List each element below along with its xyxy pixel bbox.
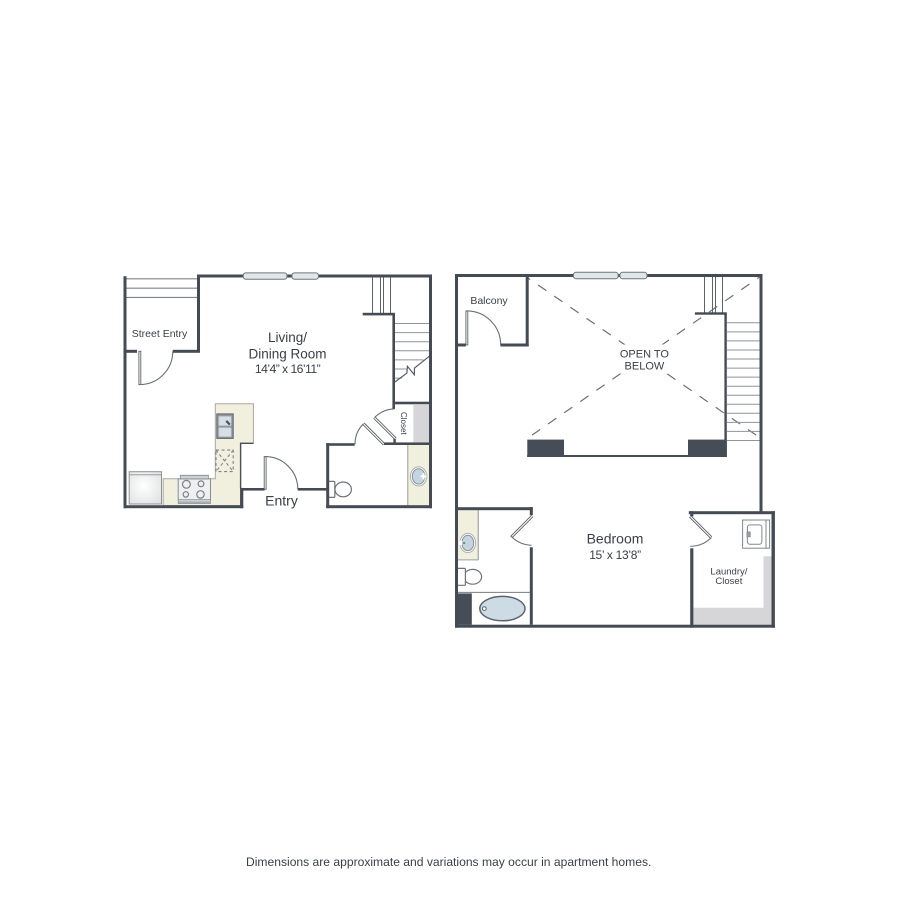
- svg-text:Closet: Closet: [399, 412, 408, 435]
- svg-text:Street Entry: Street Entry: [132, 328, 188, 340]
- svg-text:Entry: Entry: [265, 493, 298, 509]
- svg-text:14’4” x 16’11”: 14’4” x 16’11”: [255, 362, 321, 376]
- svg-text:OPEN TO: OPEN TO: [620, 349, 670, 361]
- svg-text:Closet: Closet: [715, 576, 742, 587]
- svg-text:BELOW: BELOW: [625, 361, 665, 373]
- svg-text:Living/: Living/: [268, 330, 307, 345]
- svg-text:15’ x 13’8”: 15’ x 13’8”: [589, 548, 641, 562]
- svg-text:Bedroom: Bedroom: [587, 531, 644, 547]
- svg-text:Dimensions are approximate and: Dimensions are approximate and variation…: [246, 855, 651, 869]
- svg-text:Balcony: Balcony: [470, 295, 508, 307]
- svg-text:Dining Room: Dining Room: [248, 346, 326, 361]
